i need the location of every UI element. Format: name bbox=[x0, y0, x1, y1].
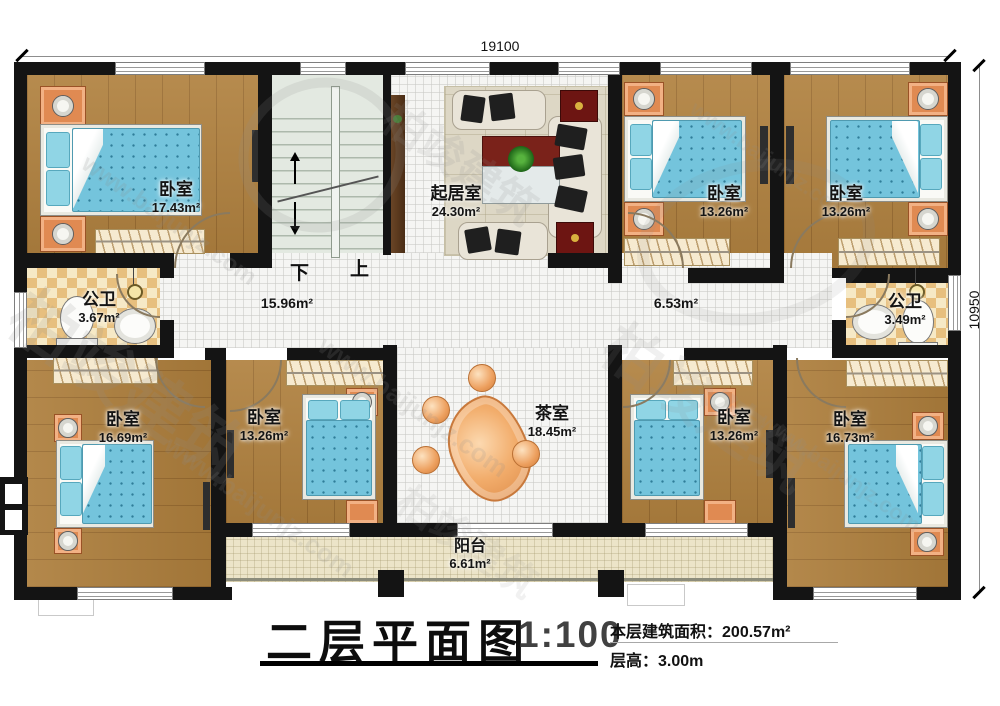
bed-pillow bbox=[46, 132, 70, 168]
room-area: 6.61m² bbox=[420, 556, 520, 571]
side-table bbox=[560, 90, 598, 122]
room-label-living: 起居室 24.30m² bbox=[406, 184, 506, 219]
room-area: 16.69m² bbox=[73, 430, 173, 445]
wall bbox=[948, 62, 961, 600]
window bbox=[252, 523, 350, 537]
tea-stool bbox=[512, 440, 540, 468]
wardrobe bbox=[53, 357, 158, 384]
tv-panel bbox=[760, 126, 768, 184]
window bbox=[115, 62, 205, 75]
room-label-balcony: 阳台 6.61m² bbox=[420, 538, 520, 571]
balcony-pillar bbox=[598, 570, 624, 597]
bed-pillow bbox=[630, 158, 652, 190]
dimension-right-value: 10950 bbox=[966, 275, 984, 345]
bed-pillow bbox=[922, 446, 944, 480]
tea-stool bbox=[422, 396, 450, 424]
lamp-icon bbox=[52, 95, 74, 117]
lamp-icon bbox=[917, 532, 937, 552]
room-label-bedroom-b3: 卧室 13.26m² bbox=[684, 408, 784, 443]
bed-quilt bbox=[306, 420, 372, 496]
wall bbox=[548, 253, 622, 268]
wall bbox=[553, 523, 622, 537]
room-label-bedroom-bl: 卧室 16.69m² bbox=[73, 410, 173, 445]
window bbox=[300, 62, 346, 75]
wall bbox=[14, 345, 160, 358]
room-name: 茶室 bbox=[502, 404, 602, 424]
floor-area-value: 200.57m² bbox=[722, 624, 791, 641]
room-area: 13.26m² bbox=[674, 204, 774, 219]
room-label-bedroom-tl: 卧室 17.43m² bbox=[126, 180, 226, 215]
room-name: 卧室 bbox=[73, 410, 173, 430]
tv-panel bbox=[203, 482, 210, 530]
room-name: 公卫 bbox=[49, 290, 149, 310]
wardrobe bbox=[838, 238, 940, 266]
window bbox=[790, 62, 910, 75]
room-area: 16.73m² bbox=[800, 430, 900, 445]
bed-pillow bbox=[922, 482, 944, 516]
floor-area-label: 本层建筑面积： bbox=[610, 624, 722, 641]
room-area: 3.67m² bbox=[49, 310, 149, 325]
nightstand bbox=[346, 500, 378, 524]
bed-pillow bbox=[60, 446, 82, 480]
sofa-cushion bbox=[489, 93, 516, 122]
plant-icon bbox=[508, 146, 534, 172]
window bbox=[14, 292, 27, 348]
room-area: 3.49m² bbox=[855, 312, 955, 327]
title-underline bbox=[260, 661, 598, 666]
stair-rail bbox=[331, 86, 340, 258]
tea-stool bbox=[468, 364, 496, 392]
hall-area: 6.53m² bbox=[626, 296, 726, 311]
wall bbox=[684, 348, 773, 360]
wardrobe bbox=[673, 360, 753, 386]
wall bbox=[287, 348, 383, 360]
dimension-top-value: 19100 bbox=[460, 38, 540, 54]
room-name: 卧室 bbox=[800, 410, 900, 430]
side-table bbox=[556, 222, 594, 254]
room-name: 卧室 bbox=[674, 184, 774, 204]
floor-area-note: 本层建筑面积：200.57m² bbox=[610, 618, 791, 642]
room-name: 公卫 bbox=[855, 292, 955, 312]
lamp-icon bbox=[52, 223, 74, 245]
wall bbox=[350, 523, 397, 537]
wall bbox=[608, 75, 622, 283]
lamp-icon bbox=[58, 531, 78, 551]
floor-plan-sheet: 19100 10950 卧室 17.43m² 起居室 24.30m² 卧室 13… bbox=[0, 0, 1000, 706]
floor-height-note: 层高：3.00m bbox=[610, 647, 703, 671]
room-label-bedroom-br: 卧室 16.73m² bbox=[800, 410, 900, 445]
wall bbox=[383, 345, 397, 537]
window bbox=[660, 62, 752, 75]
wall bbox=[622, 523, 645, 537]
floor-height-label: 层高： bbox=[610, 653, 658, 670]
wall bbox=[160, 268, 174, 278]
balcony-rail bbox=[226, 578, 773, 581]
stair-arrow-down-head bbox=[290, 226, 300, 235]
wall bbox=[230, 253, 272, 268]
table-lamp-icon bbox=[571, 234, 579, 242]
table-lamp-icon bbox=[575, 102, 583, 110]
wall bbox=[770, 75, 784, 283]
room-area: 18.45m² bbox=[502, 424, 602, 439]
room-area: 17.43m² bbox=[126, 200, 226, 215]
wall bbox=[748, 523, 787, 537]
room-area: 24.30m² bbox=[406, 204, 506, 219]
room-area: 13.26m² bbox=[796, 204, 896, 219]
bed-fold bbox=[83, 445, 105, 521]
tv-panel bbox=[786, 126, 794, 184]
stairs-down-label: 下 bbox=[290, 258, 309, 285]
dimension-line-top bbox=[22, 56, 950, 57]
cabinet-plant-icon bbox=[393, 115, 402, 123]
wall bbox=[14, 253, 174, 268]
tea-stool bbox=[412, 446, 440, 474]
room-area: 13.26m² bbox=[214, 428, 314, 443]
exterior-ledge-slot bbox=[5, 484, 22, 504]
wall bbox=[226, 523, 252, 537]
wardrobe bbox=[286, 360, 384, 386]
lamp-icon bbox=[918, 416, 938, 436]
window bbox=[457, 523, 553, 537]
bed-pillow bbox=[630, 124, 652, 156]
exterior-step-outline bbox=[38, 598, 94, 616]
stair-arrow-up-head bbox=[290, 152, 300, 161]
wall bbox=[383, 75, 391, 255]
wall bbox=[688, 268, 784, 283]
hall-right-area-label: 6.53m² bbox=[626, 296, 726, 311]
tv-panel bbox=[788, 478, 795, 528]
wall bbox=[608, 345, 622, 537]
bed-fold bbox=[896, 445, 918, 521]
wall bbox=[832, 268, 846, 278]
stair-arrow-up-stem bbox=[294, 160, 296, 184]
wall bbox=[160, 320, 174, 358]
balcony-pillar bbox=[378, 570, 404, 597]
room-name: 卧室 bbox=[796, 184, 896, 204]
wardrobe bbox=[846, 360, 948, 387]
window bbox=[77, 587, 173, 600]
sofa-cushion bbox=[460, 95, 485, 124]
window bbox=[558, 62, 620, 75]
sofa-cushion bbox=[494, 228, 521, 255]
wall bbox=[773, 345, 787, 600]
lamp-icon bbox=[917, 208, 939, 230]
hall-area: 15.96m² bbox=[237, 296, 337, 311]
window bbox=[813, 587, 917, 600]
bed-pillow bbox=[340, 400, 370, 420]
nightstand bbox=[704, 500, 736, 524]
wall bbox=[160, 253, 174, 268]
sheet-scale: 1:100 bbox=[518, 614, 623, 656]
room-label-tea: 茶室 18.45m² bbox=[502, 404, 602, 439]
exterior-ledge-slot bbox=[5, 510, 22, 530]
floor-height-value: 3.00m bbox=[658, 653, 703, 670]
stair-arrow-down-stem bbox=[294, 202, 296, 226]
room-name: 起居室 bbox=[406, 184, 506, 204]
bed-pillow bbox=[46, 170, 70, 206]
stairs-up-label: 上 bbox=[350, 254, 369, 281]
wall bbox=[205, 348, 226, 360]
room-name: 阳台 bbox=[420, 538, 520, 556]
room-label-bath-left: 公卫 3.67m² bbox=[49, 290, 149, 325]
room-label-bath-right: 公卫 3.49m² bbox=[855, 292, 955, 327]
room-label-bedroom-t3: 卧室 13.26m² bbox=[796, 184, 896, 219]
wall bbox=[258, 75, 272, 268]
sofa-cushion bbox=[553, 154, 586, 180]
note-divider bbox=[610, 642, 838, 643]
bed-fold bbox=[73, 129, 103, 209]
room-name: 卧室 bbox=[126, 180, 226, 200]
lamp-icon bbox=[917, 88, 939, 110]
exterior-step-outline bbox=[627, 584, 685, 606]
hall-left-area-label: 15.96m² bbox=[237, 296, 337, 311]
wall bbox=[832, 320, 846, 358]
bed-pillow bbox=[920, 124, 942, 156]
room-area: 13.26m² bbox=[684, 428, 784, 443]
room-name: 卧室 bbox=[684, 408, 784, 428]
bed-pillow bbox=[920, 158, 942, 190]
lamp-icon bbox=[633, 88, 655, 110]
window bbox=[405, 62, 490, 75]
room-name: 卧室 bbox=[214, 408, 314, 428]
wall bbox=[397, 523, 457, 537]
bed-pillow bbox=[60, 482, 82, 516]
wall bbox=[846, 345, 948, 358]
sofa-cushion bbox=[464, 226, 492, 254]
room-label-bedroom-t2: 卧室 13.26m² bbox=[674, 184, 774, 219]
window bbox=[645, 523, 748, 537]
wall bbox=[211, 348, 226, 600]
room-label-bedroom-b2: 卧室 13.26m² bbox=[214, 408, 314, 443]
